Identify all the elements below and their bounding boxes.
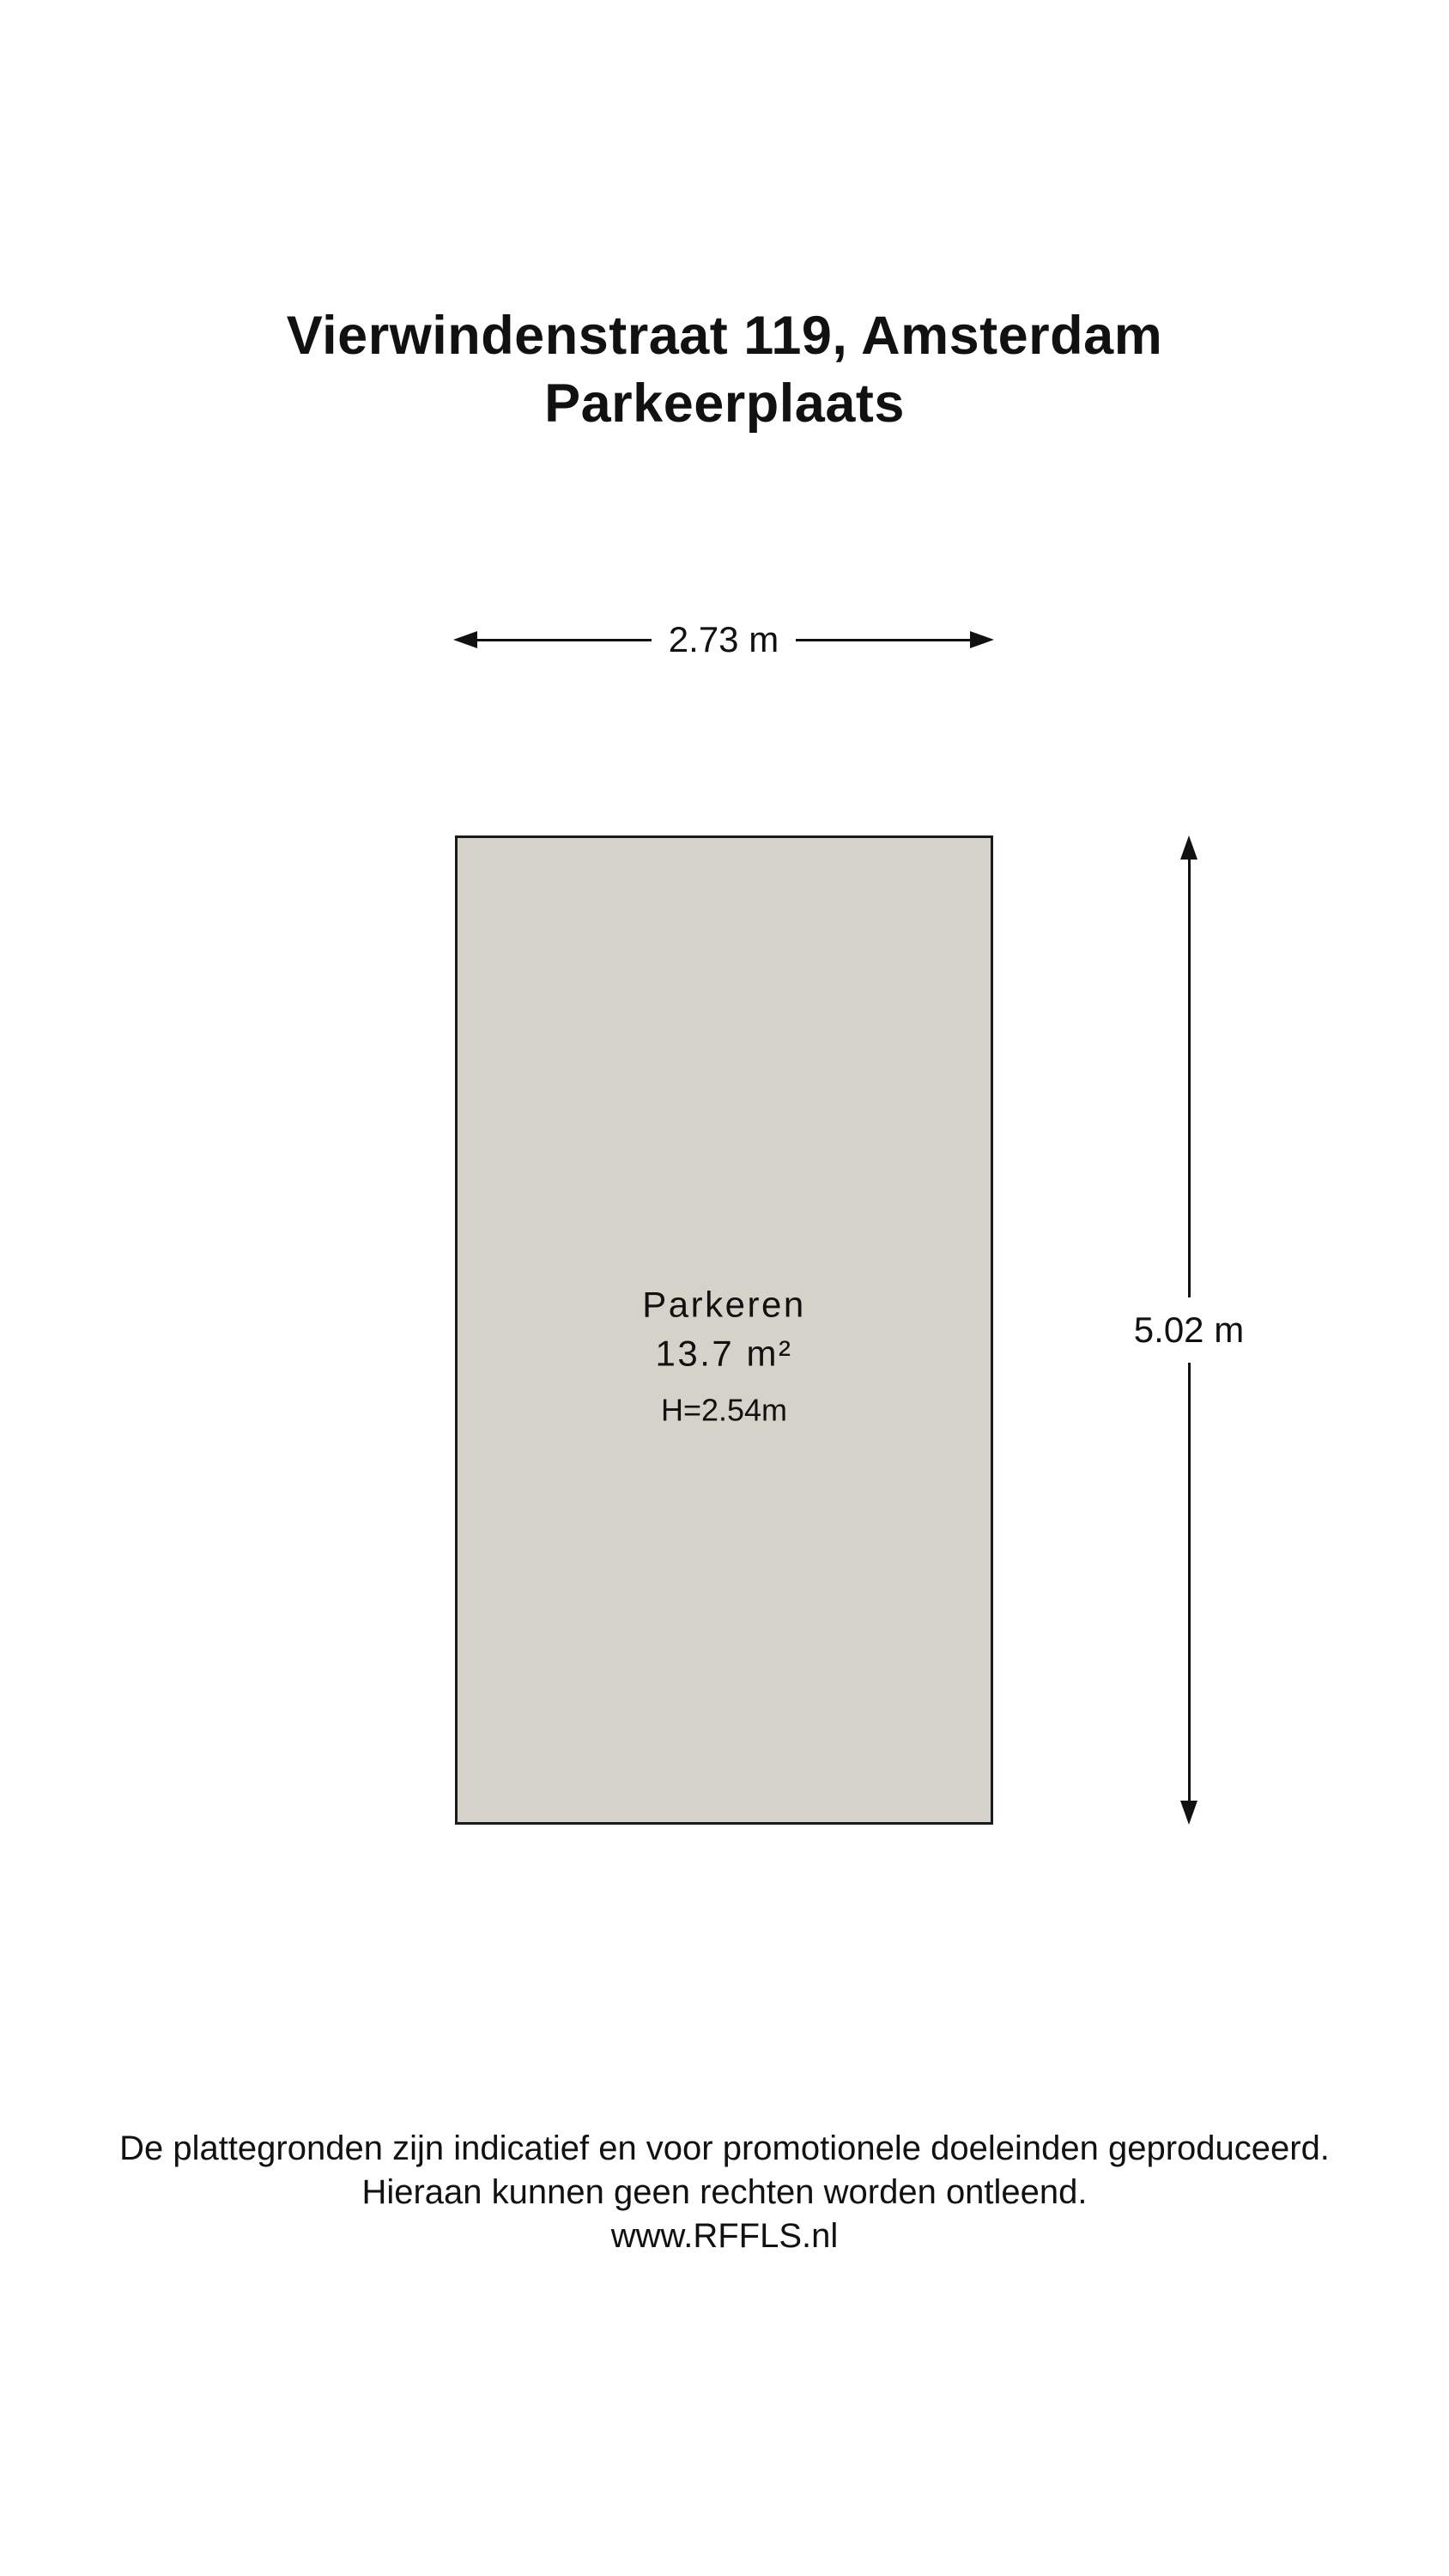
room-ceiling-height: H=2.54m: [458, 1391, 991, 1428]
dimension-line-left: [477, 639, 652, 641]
dimension-arrow-left-icon: [453, 631, 477, 648]
dimension-line-bottom: [1188, 1363, 1191, 1801]
footer-disclaimer: De plattegronden zijn indicatief en voor…: [0, 2127, 1449, 2258]
height-dimension: 5.02 m: [1129, 835, 1249, 1825]
room-area: 13.7 m²: [458, 1333, 991, 1376]
parking-space: Parkeren 13.7 m² H=2.54m: [455, 835, 993, 1825]
room-label: Parkeren 13.7 m² H=2.54m: [458, 1284, 991, 1429]
dimension-line-right: [796, 639, 970, 641]
title-subtitle: Parkeerplaats: [0, 370, 1449, 438]
page-title: Vierwindenstraat 119, Amsterdam Parkeerp…: [0, 302, 1449, 438]
dimension-arrow-up-icon: [1180, 835, 1197, 860]
disclaimer-line-1: De plattegronden zijn indicatief en voor…: [0, 2127, 1449, 2171]
website-url: www.RFFLS.nl: [0, 2215, 1449, 2258]
width-dimension-label: 2.73 m: [652, 619, 796, 660]
height-dimension-label: 5.02 m: [1134, 1297, 1244, 1363]
dimension-arrow-down-icon: [1180, 1801, 1197, 1825]
dimension-arrow-right-icon: [970, 631, 994, 648]
title-address: Vierwindenstraat 119, Amsterdam: [0, 302, 1449, 370]
dimension-line-top: [1188, 860, 1191, 1297]
width-dimension: 2.73 m: [453, 616, 994, 664]
room-name: Parkeren: [458, 1284, 991, 1327]
disclaimer-line-2: Hieraan kunnen geen rechten worden ontle…: [0, 2171, 1449, 2215]
